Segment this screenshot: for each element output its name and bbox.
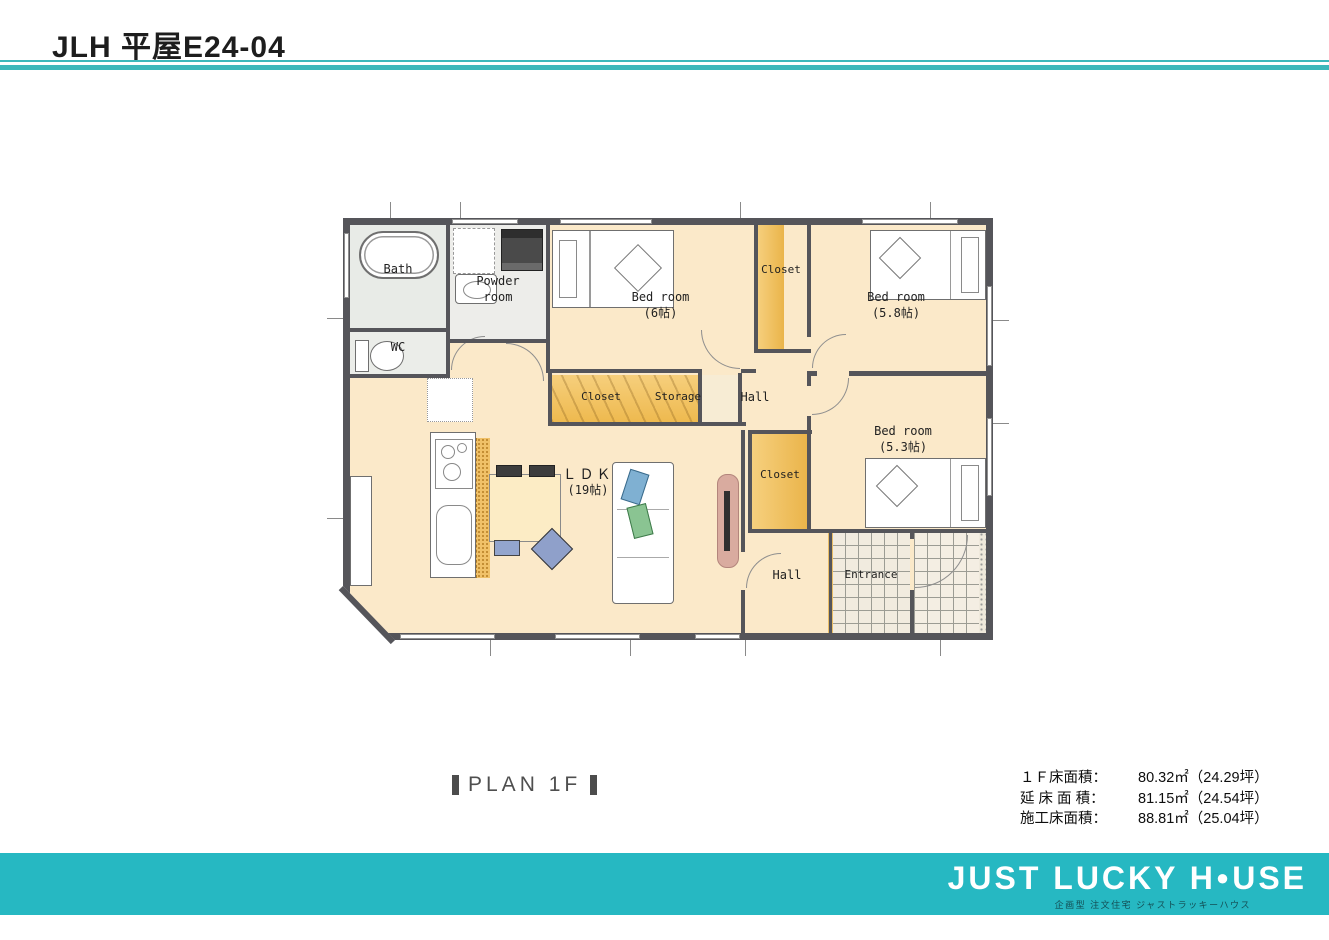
dimension-tick	[993, 423, 1009, 424]
caption-bar-left	[452, 775, 459, 795]
blanket-line	[950, 459, 952, 527]
stove	[435, 439, 473, 489]
window-marker	[862, 219, 958, 224]
dimension-tick	[460, 202, 461, 218]
room-label-bedroom6: Bed room (6帖)	[593, 290, 728, 321]
dimension-tick	[740, 202, 741, 218]
burner	[443, 463, 461, 481]
dimension-tick	[490, 640, 491, 656]
logo-dot-icon: ●	[1216, 865, 1232, 890]
header-rule-thick	[0, 65, 1329, 70]
dimension-tick	[940, 640, 941, 656]
logo-text-left: JUST LUCKY H	[948, 860, 1216, 896]
bed-cushion	[614, 244, 662, 292]
wall-segment	[754, 349, 811, 353]
dimension-tick	[630, 640, 631, 656]
room-label-ldk-size: (19帖)	[538, 483, 638, 499]
wall-segment	[741, 590, 745, 633]
area-row: 延 床 面 積： 81.15㎡（24.54坪）	[1020, 789, 1269, 810]
dimension-tick	[993, 320, 1009, 321]
caption-bar-right	[590, 775, 597, 795]
room-label-closet-mid: Closet	[568, 390, 634, 404]
area-summary: １Ｆ床面積： 80.32㎡（24.29坪） 延 床 面 積： 81.15㎡（24…	[1020, 768, 1269, 830]
counter-front	[476, 438, 490, 578]
window-marker	[400, 634, 495, 639]
dining-chair-blue	[494, 540, 520, 556]
wall-segment	[748, 529, 812, 533]
brand-logo: JUST LUCKY H●USE	[948, 860, 1307, 897]
window-marker	[987, 418, 992, 496]
room-label-bedroom58: Bed room (5.8帖)	[811, 290, 981, 321]
kitchen-counter	[430, 432, 476, 578]
burner	[441, 445, 455, 459]
wall-segment	[741, 369, 756, 373]
area-label: 施工床面積：	[1020, 809, 1132, 830]
blanket-line	[589, 231, 591, 307]
area-row: １Ｆ床面積： 80.32㎡（24.29坪）	[1020, 768, 1269, 789]
dining-chair	[496, 465, 522, 477]
logo-text-right: USE	[1232, 860, 1307, 896]
room-label-bath: Bath	[363, 262, 433, 278]
footer-band: JUST LUCKY H●USE 企画型 注文住宅 ジャストラッキーハウス	[0, 853, 1329, 915]
floor-closet-top	[757, 225, 784, 351]
dimension-tick	[327, 318, 343, 319]
area-value: 80.32㎡（24.29坪）	[1138, 768, 1269, 789]
room-label-closet-top: Closet	[748, 263, 814, 277]
room-label-ldk: ＬＤＫ	[538, 466, 638, 484]
room-label-storage: Storage	[645, 390, 711, 404]
room-label-wc: WC	[365, 340, 431, 356]
area-label: １Ｆ床面積：	[1020, 768, 1132, 789]
wall-segment	[548, 373, 552, 426]
wall-segment	[910, 590, 914, 633]
floor-entrance-tile	[832, 532, 910, 634]
ldk-side-cabinet	[350, 476, 372, 586]
area-value: 88.81㎡（25.04坪）	[1138, 809, 1269, 830]
wall-segment	[546, 225, 550, 373]
laundry-space	[453, 228, 495, 274]
dimension-tick	[930, 202, 931, 218]
wall-segment	[446, 339, 550, 343]
room-label-hall-mid: Hall	[725, 390, 785, 406]
burner	[457, 443, 467, 453]
tv-board	[717, 474, 739, 568]
window-marker	[555, 634, 640, 639]
pillow	[961, 465, 979, 521]
area-row: 施工床面積： 88.81㎡（25.04坪）	[1020, 809, 1269, 830]
bed-53	[865, 458, 986, 528]
area-label: 延 床 面 積：	[1020, 789, 1132, 810]
room-label-entrance: Entrance	[832, 568, 910, 582]
wall-segment	[754, 225, 758, 353]
pillow	[559, 240, 577, 298]
brand-tagline: 企画型 注文住宅 ジャストラッキーハウス	[1055, 898, 1251, 911]
room-label-closet-low: Closet	[748, 468, 812, 482]
wall-segment	[741, 430, 745, 552]
tv	[724, 491, 730, 551]
window-marker	[695, 634, 740, 639]
area-value: 81.15㎡（24.54坪）	[1138, 789, 1269, 810]
floor-plan: Bath Powder room WC Bed room (6帖) Closet…	[343, 218, 993, 643]
plan-caption: PLAN 1F	[452, 773, 597, 797]
header-rule-thin	[0, 60, 1329, 62]
page: JLH 平屋E24-04	[0, 0, 1329, 940]
dimension-tick	[327, 518, 343, 519]
wall-segment	[910, 529, 914, 539]
room-label-powder: Powder room	[453, 274, 543, 305]
kitchen-sink	[436, 505, 472, 565]
wall-segment	[849, 371, 993, 376]
washing-machine	[501, 229, 543, 271]
wall-segment	[350, 374, 450, 378]
wall-segment	[446, 328, 450, 378]
blanket-line	[950, 231, 952, 299]
dimension-tick	[390, 202, 391, 218]
window-marker	[560, 219, 652, 224]
window-marker	[987, 286, 992, 366]
wall-segment	[748, 430, 812, 434]
window-marker	[344, 233, 349, 298]
room-label-bedroom53: Bed room (5.3帖)	[823, 424, 983, 455]
room-label-hall-low: Hall	[757, 568, 817, 584]
refrigerator	[427, 378, 473, 422]
wall-segment	[807, 376, 811, 386]
pillow	[961, 237, 979, 293]
wall-segment	[546, 369, 702, 373]
wall-segment	[548, 422, 746, 426]
dimension-tick	[745, 640, 746, 656]
wall-segment	[808, 529, 993, 533]
sofa-seam	[617, 557, 669, 558]
caption-text: PLAN 1F	[468, 773, 581, 797]
window-marker	[452, 219, 518, 224]
bed-cushion	[876, 465, 918, 507]
wall-segment	[350, 328, 450, 332]
bed-cushion	[879, 237, 921, 279]
wall-segment	[446, 225, 450, 332]
